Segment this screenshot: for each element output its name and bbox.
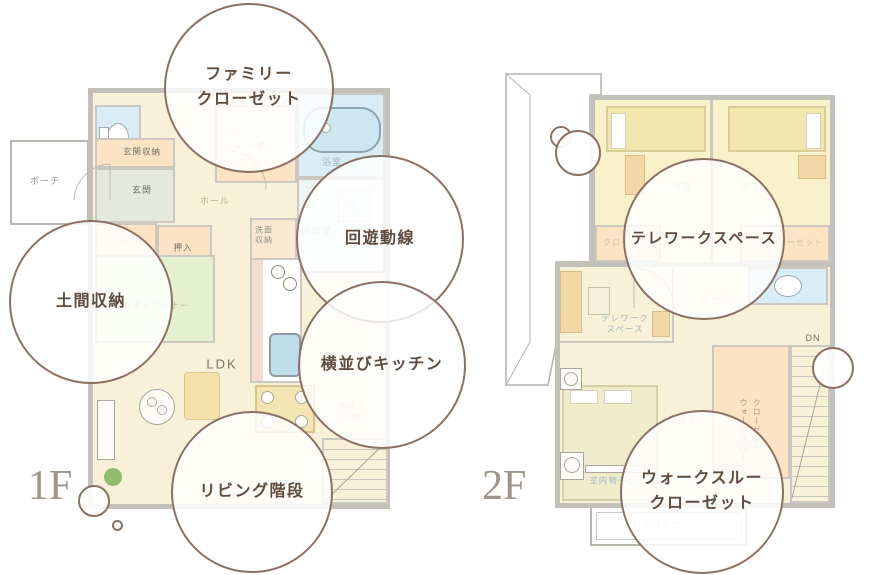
sofa <box>184 372 220 420</box>
floor1-label: 1F <box>28 462 72 510</box>
desk-right <box>798 155 826 179</box>
deco-bubble <box>555 130 601 176</box>
plant-icon <box>104 468 122 486</box>
hall-1f-label: ホール <box>200 196 230 208</box>
teacup-icon <box>157 405 167 415</box>
telework-counter-desk <box>560 271 582 333</box>
deco-bubble <box>78 485 110 517</box>
down-label: DN <box>806 333 821 345</box>
washer-icon <box>560 368 582 390</box>
floor-plan-canvas: ポーチ 玄関収納 玄関 ホール ファミリー クローゼット 浴室 洗面室 S <box>0 0 870 575</box>
toilet-icon <box>774 275 802 297</box>
floor2-label: 2F <box>482 462 526 510</box>
telework-room-label: テレワーク スペース <box>601 313 649 335</box>
kitchen-side-panel <box>252 260 263 381</box>
kitchen-sink-icon <box>269 333 301 377</box>
teacup-icon <box>147 397 157 407</box>
telework-side-desk <box>652 311 670 337</box>
oshiire-label: 押入 <box>173 242 192 253</box>
callout-family-closet: ファミリー クローゼット <box>164 3 334 173</box>
callout-telework: テレワークスペース <box>623 158 785 320</box>
entrance-label: 玄関 <box>132 185 152 197</box>
ldk-label: LDK <box>206 357 237 374</box>
callout-doma-storage: 土間収納 <box>9 220 173 384</box>
telework-small-desk <box>588 287 610 315</box>
bed-right <box>728 106 826 152</box>
deco-bubble <box>112 520 123 531</box>
stove-burner-icon <box>283 277 297 291</box>
laundry-basket-icon <box>560 452 584 480</box>
plate-icon <box>261 391 274 404</box>
entrance-storage-label: 玄関収納 <box>123 146 161 157</box>
callout-walkthrough-closet: ウォークスルー クローゼット <box>620 410 784 574</box>
callout-side-kitchen: 横並びキッチン <box>298 281 466 449</box>
tv-board <box>97 400 115 460</box>
stove-burner-icon <box>271 265 285 279</box>
wash-storage-label: 洗面 収納 <box>255 226 273 247</box>
porch-label: ポーチ <box>30 176 60 188</box>
bed-left <box>606 106 706 152</box>
deco-bubble <box>812 347 854 389</box>
callout-living-stairs: リビング階段 <box>171 411 333 573</box>
